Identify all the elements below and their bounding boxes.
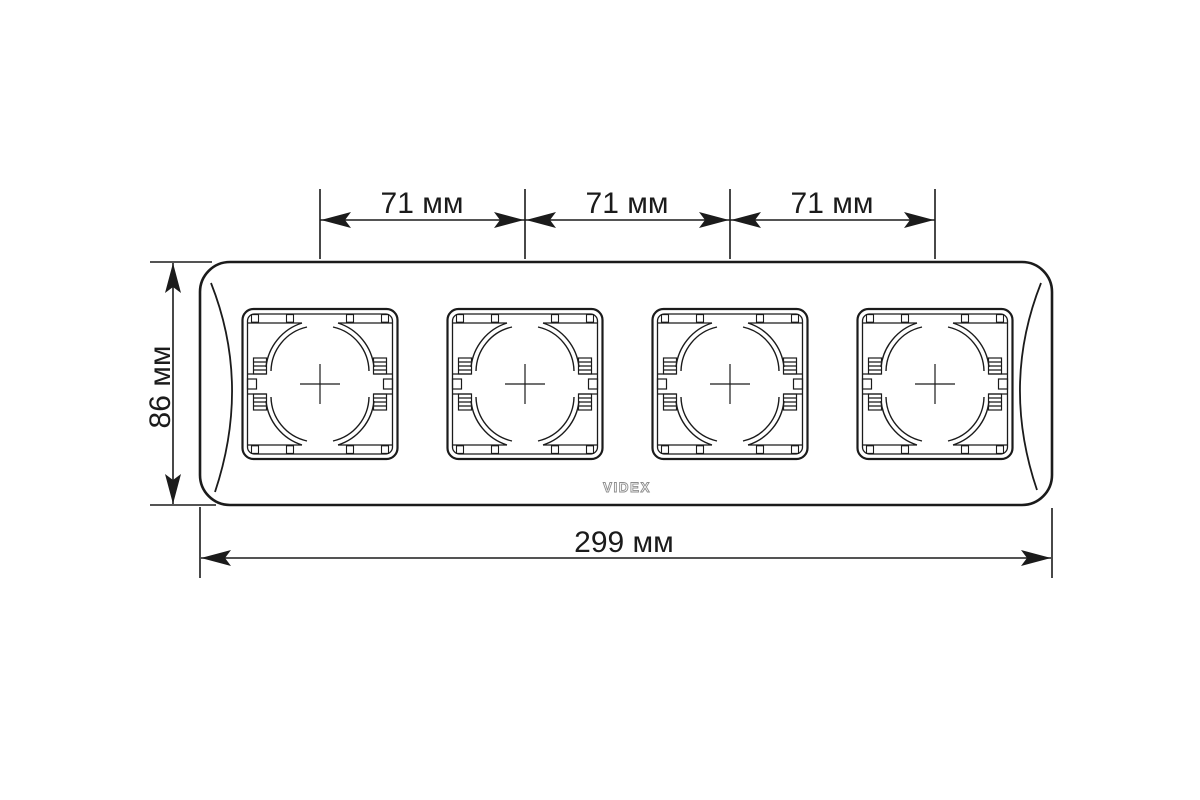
socket-opening-1 <box>243 309 398 459</box>
drawing-page: 71 мм 71 мм 71 мм 86 мм 299 мм VIDEX <box>0 0 1200 800</box>
brand-logo: VIDEX <box>603 480 651 495</box>
dimension-left-height: 86 мм <box>144 262 216 505</box>
dim-label-spacing-1: 71 мм <box>381 187 464 220</box>
dim-label-height: 86 мм <box>144 346 177 429</box>
dimension-top-spacing: 71 мм 71 мм 71 мм <box>320 187 935 259</box>
frame-body: VIDEX <box>200 262 1052 505</box>
socket-opening-3 <box>653 309 808 459</box>
socket-opening-2 <box>448 309 603 459</box>
dim-label-spacing-3: 71 мм <box>791 187 874 220</box>
technical-drawing: 71 мм 71 мм 71 мм 86 мм 299 мм VIDEX <box>0 0 1200 800</box>
socket-opening-4 <box>858 309 1013 459</box>
dim-label-width: 299 мм <box>574 526 674 559</box>
frame-accent-curve-left <box>211 283 232 492</box>
dimension-bottom-width: 299 мм <box>200 507 1052 578</box>
frame-accent-curve-right <box>1020 283 1041 490</box>
dim-label-spacing-2: 71 мм <box>586 187 669 220</box>
